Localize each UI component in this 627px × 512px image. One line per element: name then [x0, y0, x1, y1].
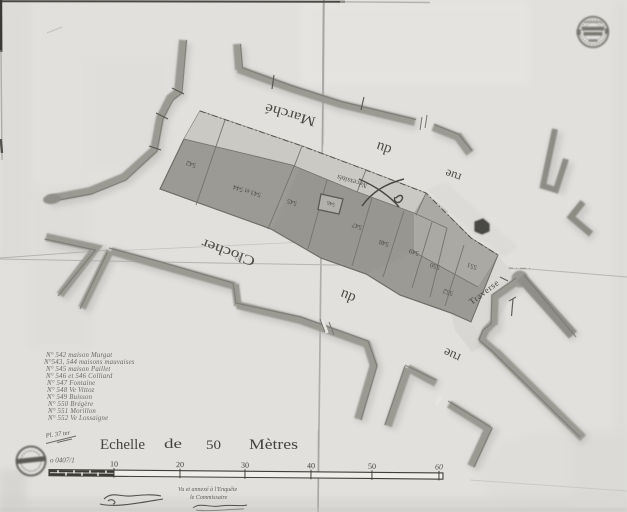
svg-text:30: 30	[241, 461, 249, 470]
svg-text:N° 546 et 546 Colliard: N° 546 et 546 Colliard	[45, 373, 113, 380]
svg-text:10: 10	[110, 460, 118, 469]
svg-text:de: de	[164, 437, 182, 452]
svg-text:N° 552 Ve Lossaigne: N° 552 Ve Lossaigne	[47, 415, 108, 422]
svg-text:N° 551 Morillon: N° 551 Morillon	[47, 408, 96, 415]
svg-text:o 0407/1: o 0407/1	[50, 457, 75, 465]
svg-text:50: 50	[206, 438, 221, 452]
svg-text:Mètres: Mètres	[249, 437, 298, 453]
svg-text:Vu et annexé à l'Enquête: Vu et annexé à l'Enquête	[178, 487, 237, 493]
svg-text:Echelle: Echelle	[100, 437, 145, 453]
svg-text:N° 548 Ve Vittoz: N° 548 Ve Vittoz	[46, 387, 95, 394]
svg-text:60: 60	[435, 462, 443, 471]
svg-text:40: 40	[307, 461, 315, 470]
svg-text:N° 542 maison Murgat: N° 542 maison Murgat	[45, 352, 113, 359]
svg-text:20: 20	[176, 460, 184, 469]
svg-text:N°543, 544 maisons mauvaises: N°543, 544 maisons mauvaises	[43, 359, 135, 366]
svg-text:N° 547 Fontaine: N° 547 Fontaine	[46, 380, 95, 387]
svg-text:N° 545 maison Paillet: N° 545 maison Paillet	[45, 366, 111, 373]
svg-text:50: 50	[368, 462, 376, 471]
svg-text:N° 550 Brégère: N° 550 Brégère	[47, 401, 93, 408]
svg-text:le Commissaire: le Commissaire	[190, 495, 228, 501]
svg-text:N° 549 Buisson: N° 549 Buisson	[46, 394, 93, 401]
